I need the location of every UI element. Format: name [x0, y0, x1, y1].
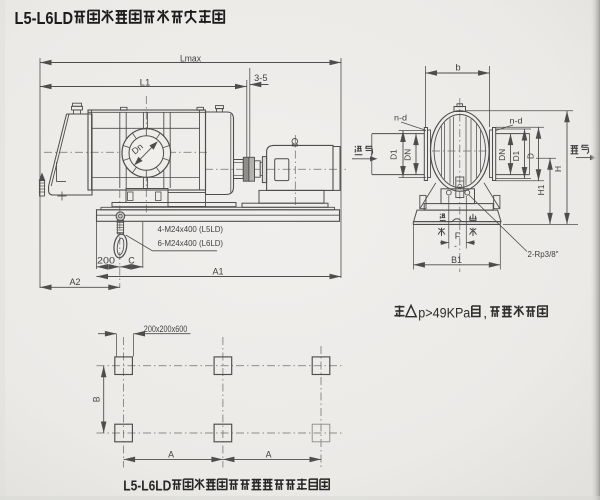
svg-text:C: C	[128, 255, 135, 265]
svg-text:D1: D1	[512, 150, 521, 161]
svg-text:F: F	[455, 231, 461, 241]
svg-text:L5-L6LD: L5-L6LD	[123, 479, 171, 495]
svg-text:200x200x600: 200x200x600	[144, 324, 188, 334]
svg-text:L5-L6LD: L5-L6LD	[15, 8, 74, 28]
svg-text:4-M24x400 (L5LD): 4-M24x400 (L5LD)	[158, 225, 224, 234]
svg-text:6-M24x400 (L6LD): 6-M24x400 (L6LD)	[158, 239, 224, 248]
svg-text:H: H	[553, 166, 563, 172]
svg-text:,: ,	[483, 305, 487, 321]
svg-text:Lmax: Lmax	[180, 53, 201, 64]
svg-text:2-Rp3/8": 2-Rp3/8"	[528, 249, 559, 259]
svg-text:p>49KPa: p>49KPa	[418, 305, 470, 321]
svg-text:200: 200	[97, 255, 115, 265]
svg-text:B1: B1	[451, 255, 462, 265]
svg-text:A1: A1	[212, 266, 223, 276]
svg-text:D: D	[527, 153, 536, 159]
svg-text:n-d: n-d	[510, 116, 523, 126]
svg-text:A: A	[266, 450, 272, 460]
svg-text:n-d: n-d	[394, 113, 407, 123]
svg-text:DN: DN	[404, 149, 413, 161]
svg-text:D1: D1	[390, 149, 399, 160]
svg-text:A2: A2	[69, 277, 80, 287]
svg-text:DN: DN	[498, 149, 507, 161]
svg-text:3-5: 3-5	[254, 73, 267, 83]
svg-text:B: B	[91, 396, 101, 402]
svg-text:A: A	[168, 450, 174, 460]
svg-text:H1: H1	[536, 184, 546, 195]
svg-text:L1: L1	[140, 78, 151, 89]
svg-text:b: b	[455, 62, 460, 73]
